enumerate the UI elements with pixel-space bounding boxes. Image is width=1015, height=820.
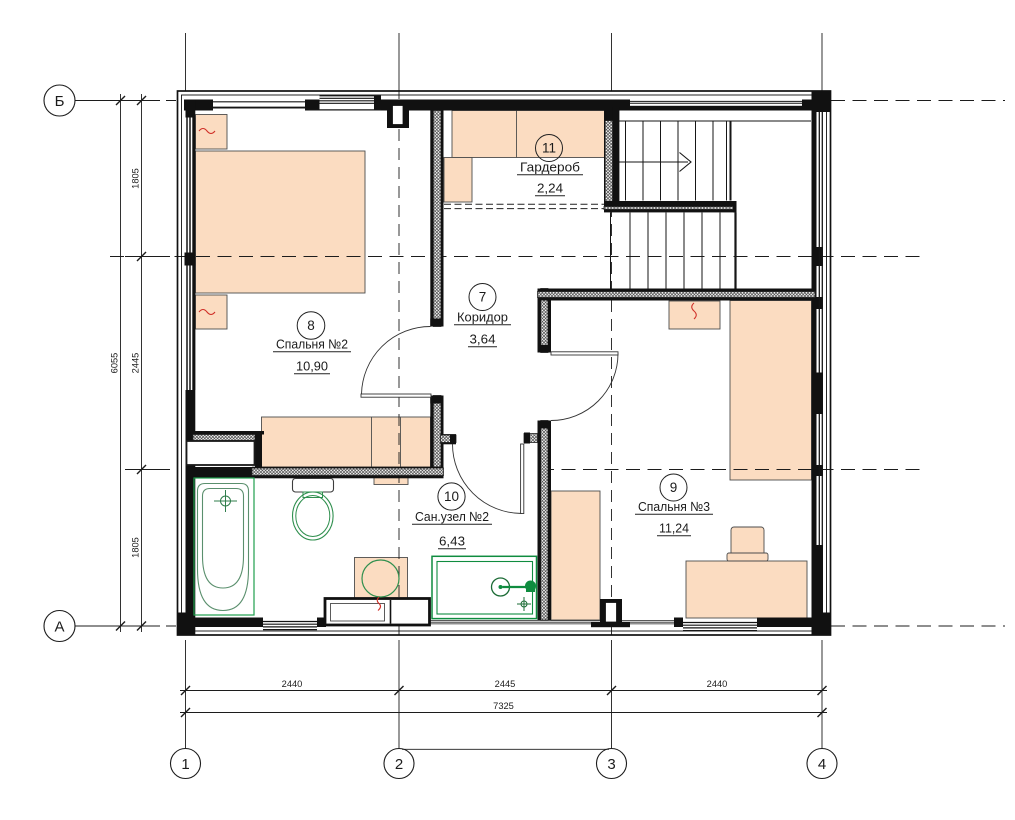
svg-text:2445: 2445 xyxy=(131,353,141,374)
svg-text:10: 10 xyxy=(444,489,459,504)
svg-text:3,64: 3,64 xyxy=(470,332,496,347)
svg-text:2,24: 2,24 xyxy=(537,181,563,196)
svg-text:1805: 1805 xyxy=(131,537,141,558)
svg-text:6055: 6055 xyxy=(110,353,120,374)
svg-text:1805: 1805 xyxy=(131,168,141,189)
svg-text:2440: 2440 xyxy=(707,679,728,689)
svg-text:10,90: 10,90 xyxy=(296,358,328,373)
svg-text:2440: 2440 xyxy=(282,679,303,689)
svg-text:Сан.узел №2: Сан.узел №2 xyxy=(415,509,489,524)
svg-text:Гардероб: Гардероб xyxy=(520,160,580,175)
svg-text:7: 7 xyxy=(479,290,487,305)
svg-text:А: А xyxy=(54,619,64,636)
svg-text:11: 11 xyxy=(542,141,556,156)
svg-text:7325: 7325 xyxy=(493,701,514,711)
svg-text:11,24: 11,24 xyxy=(659,521,689,536)
svg-text:1: 1 xyxy=(181,756,189,773)
svg-text:Спальня №2: Спальня №2 xyxy=(276,337,348,352)
svg-text:3: 3 xyxy=(607,756,615,773)
svg-text:Б: Б xyxy=(55,93,65,110)
svg-text:4: 4 xyxy=(818,756,826,773)
svg-text:2: 2 xyxy=(395,756,403,773)
svg-text:2445: 2445 xyxy=(495,679,516,689)
svg-text:Коридор: Коридор xyxy=(457,310,508,325)
svg-text:8: 8 xyxy=(307,318,315,333)
svg-text:9: 9 xyxy=(670,480,678,495)
svg-text:6,43: 6,43 xyxy=(439,534,465,549)
svg-text:Спальня №3: Спальня №3 xyxy=(638,499,710,514)
